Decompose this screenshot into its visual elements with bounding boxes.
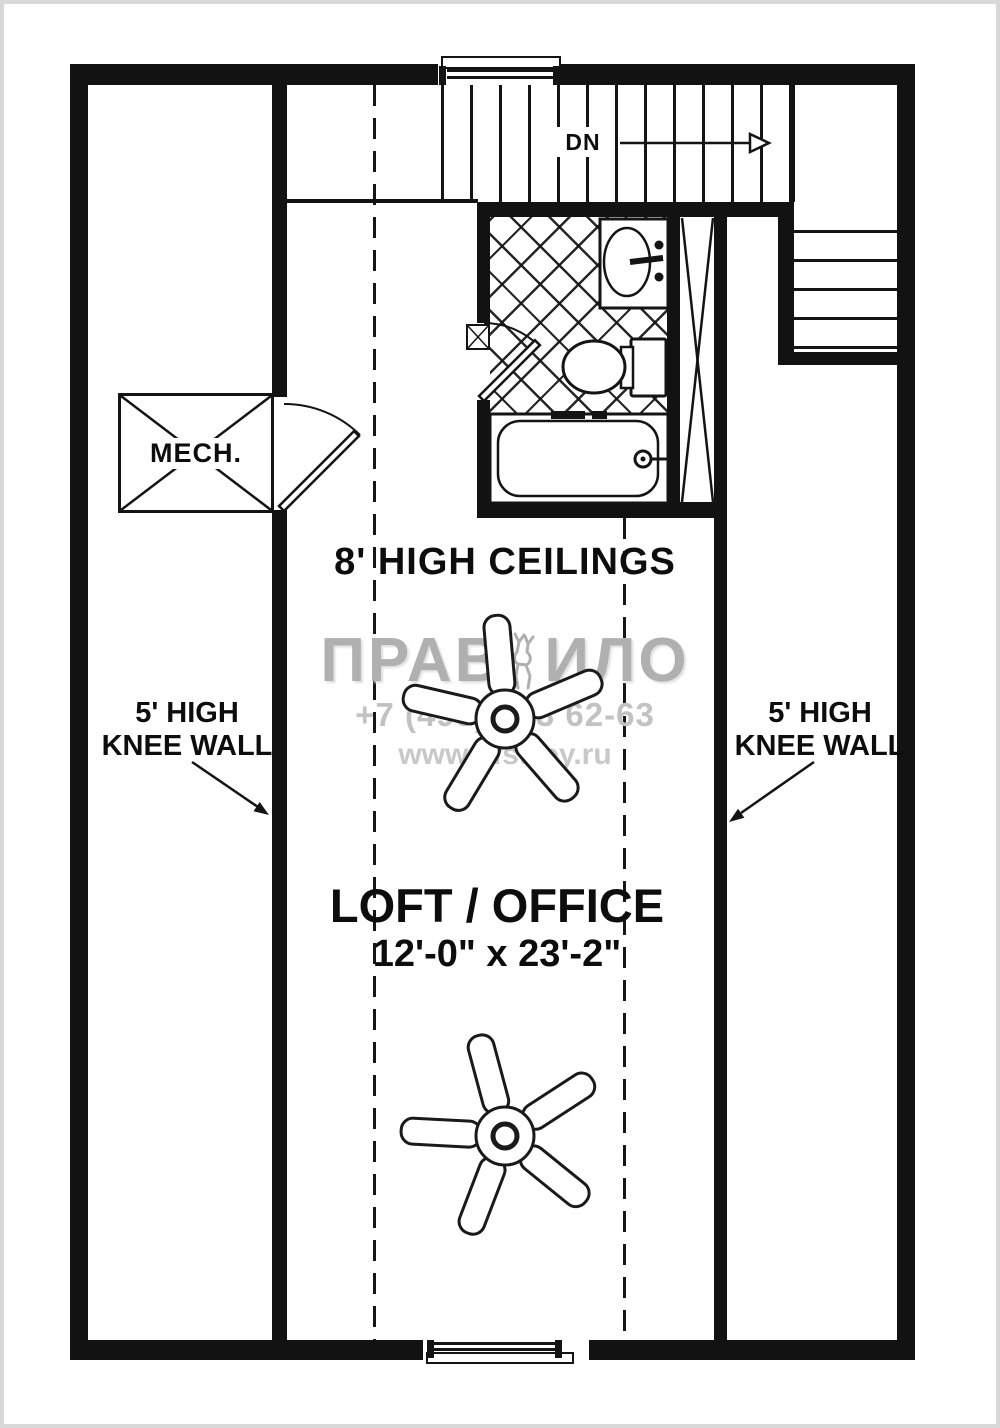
knee-wall-right <box>714 215 727 1340</box>
watermark-brand: ПРАВ ИЛО <box>320 628 689 693</box>
window-bottom-glazing-2 <box>433 1348 557 1351</box>
knee-wall-note-right-line1: 5' HIGH <box>722 697 918 730</box>
ceiling-fan-2 <box>400 1032 599 1238</box>
window-top-glazing-1 <box>447 69 553 72</box>
room-name: LOFT / OFFICE <box>292 879 702 933</box>
bathroom-wall-right <box>667 215 680 505</box>
chase-x-brace <box>682 218 713 502</box>
watermark-website: www.vfstroy.ru <box>398 738 611 772</box>
bathroom-tile-floor <box>490 215 667 503</box>
stair-opening-edge <box>287 199 478 203</box>
knee-wall-left-upper <box>272 64 287 397</box>
deer-icon <box>505 632 541 690</box>
ceiling-height-note: 8' HIGH CEILINGS <box>300 541 710 585</box>
knee-arrow-left <box>192 762 269 815</box>
wall-accessory <box>467 325 489 349</box>
outer-wall-bottom-left <box>70 1340 423 1360</box>
stair-run-end-line <box>792 85 795 202</box>
knee-wall-note-left-line1: 5' HIGH <box>92 697 282 730</box>
stair-treads-top-run <box>441 85 795 202</box>
wall-south-of-stairs <box>478 202 794 217</box>
window-top-jamb-right <box>553 66 560 85</box>
knee-wall-note-right: 5' HIGH KNEE WALL <box>722 697 918 764</box>
window-top-glazing-2 <box>447 76 553 79</box>
stairs-dn-label: DN <box>556 127 610 157</box>
bathroom-wall-left-lower <box>477 400 490 518</box>
window-bottom-casing <box>426 1352 574 1364</box>
knee-wall-note-left-line2: KNEE WALL <box>92 730 282 763</box>
mech-room: MECH. <box>118 393 274 513</box>
outer-wall-top-left <box>70 64 438 85</box>
window-bottom-jamb-left <box>427 1340 434 1358</box>
mech-door <box>279 404 360 511</box>
stairwell-wall-left <box>778 215 794 365</box>
watermark: ПРАВ ИЛО +7 (495) 363 62-63 www.vfstroy.… <box>263 628 747 772</box>
window-top-jamb-left <box>439 66 446 85</box>
outer-wall-bottom-right <box>589 1340 915 1360</box>
bathroom-wall-south <box>477 502 727 518</box>
window-top-casing <box>441 56 561 69</box>
watermark-brand-left: ПРАВ <box>320 628 502 693</box>
outer-wall-top-right <box>556 64 915 85</box>
bathroom-wall-left-upper <box>477 202 490 323</box>
floor-plan: MECH. ПРАВ ИЛО +7 (495) 363 62-63 www.vf… <box>0 0 1000 1428</box>
window-bottom-glazing-1 <box>433 1342 557 1345</box>
stair-treads-right-run <box>794 217 897 353</box>
stairwell-wall-south <box>778 352 915 365</box>
knee-wall-note-left: 5' HIGH KNEE WALL <box>92 697 282 764</box>
knee-wall-note-right-line2: KNEE WALL <box>722 730 918 763</box>
window-bottom-jamb-right <box>555 1340 562 1358</box>
room-dimensions: 12'-0" x 23'-2" <box>292 933 702 977</box>
watermark-brand-right: ИЛО <box>544 628 689 693</box>
watermark-phone: +7 (495) 363 62-63 <box>355 696 655 734</box>
outer-wall-left <box>70 64 88 1360</box>
mech-room-label: MECH. <box>145 438 247 469</box>
